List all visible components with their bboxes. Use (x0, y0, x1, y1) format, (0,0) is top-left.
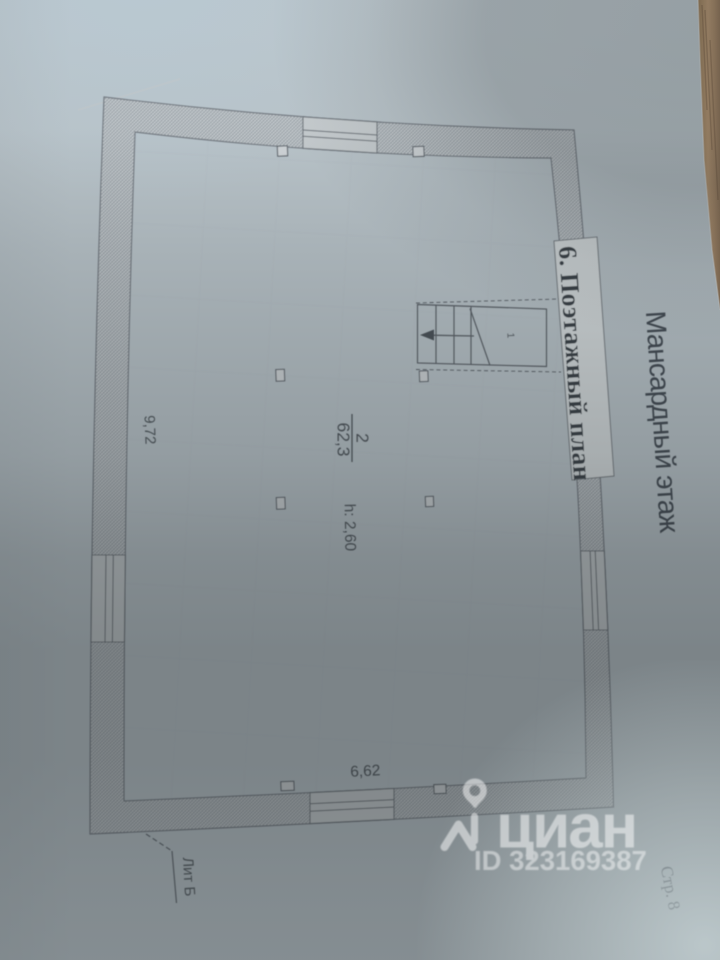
svg-text:ID 323169387: ID 323169387 (474, 845, 647, 876)
